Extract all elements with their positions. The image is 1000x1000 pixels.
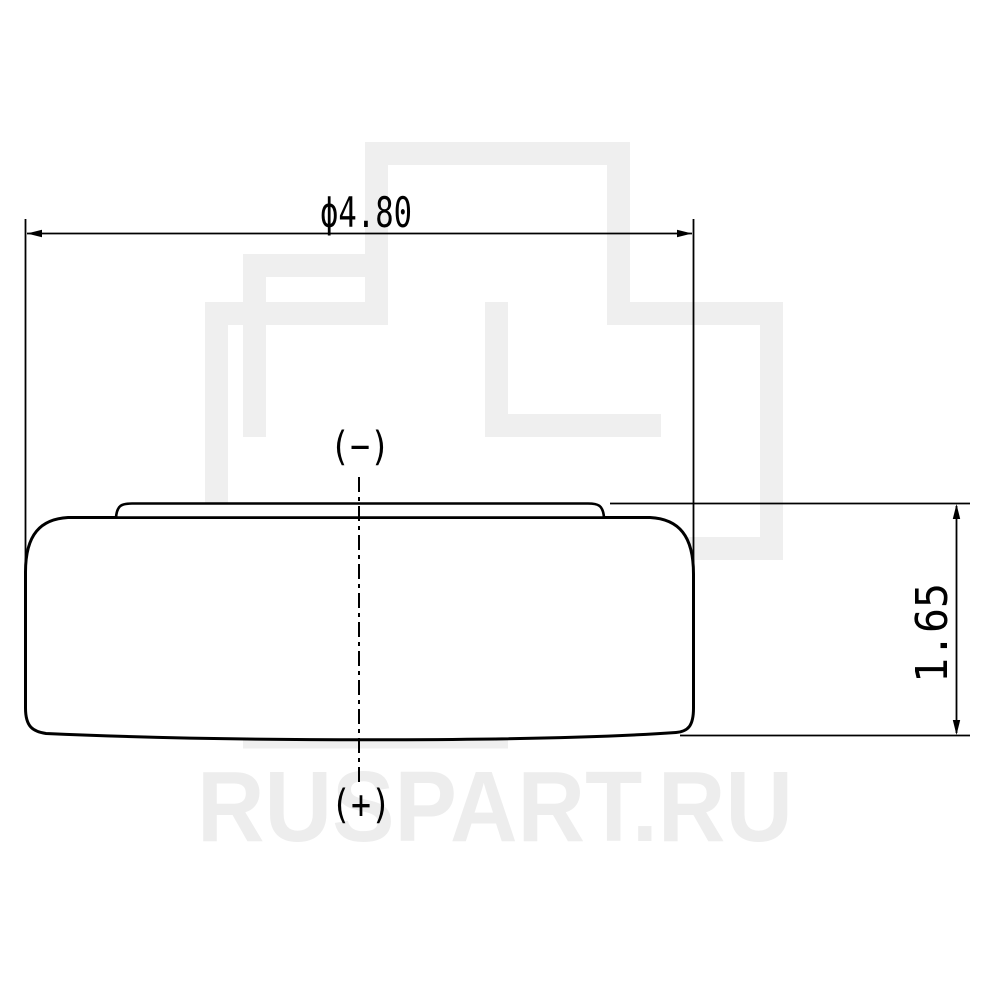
watermark-weave-segment	[496, 414, 661, 437]
negative-terminal-label: (−)	[330, 424, 390, 470]
battery-dimension-diagram: RUSPART.RU ϕ4.80 1.65 (−) (+)	[0, 0, 1000, 1000]
arrowhead-down	[953, 720, 960, 735]
watermark-text: RUSPART.RU	[197, 751, 793, 863]
diameter-dimension-label: ϕ4.80	[320, 188, 412, 237]
watermark-weave-segment	[243, 302, 266, 437]
positive-terminal-label: (+)	[331, 782, 391, 828]
arrowhead-up	[953, 504, 960, 519]
arrowhead-right	[677, 230, 692, 237]
height-dimension-label: 1.65	[907, 583, 958, 683]
drawing-canvas: RUSPART.RU ϕ4.80 1.65 (−) (+)	[0, 0, 1000, 1000]
arrowhead-left	[27, 230, 42, 237]
